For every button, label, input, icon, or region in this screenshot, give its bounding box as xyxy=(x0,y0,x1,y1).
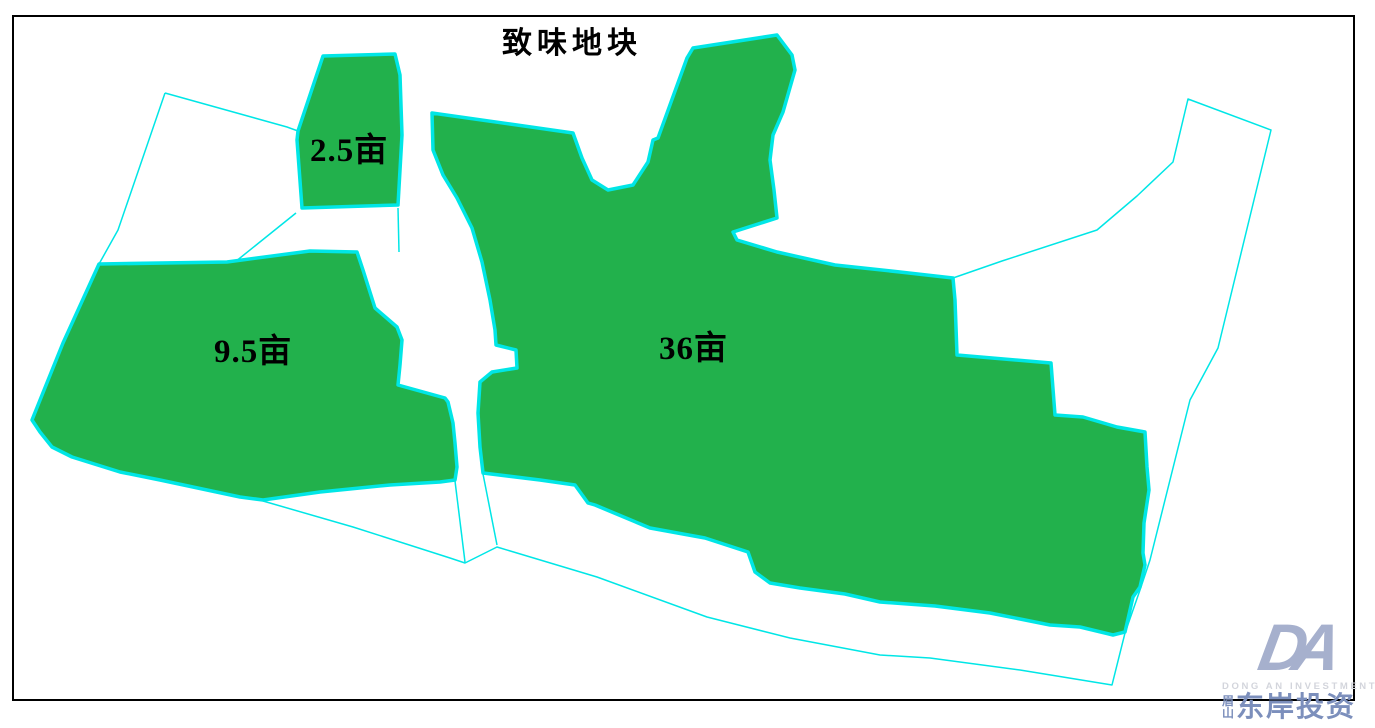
boundary-line xyxy=(99,93,165,264)
parcel-label-36: 36亩 xyxy=(659,331,728,367)
boundary-line xyxy=(398,208,399,252)
company-logo: DA DONG AN INVESTMENT 眉 山 东岸投资 xyxy=(1222,616,1375,721)
map-title: 致味地块 xyxy=(502,27,642,60)
parcel-group xyxy=(32,35,1149,635)
boundary-line xyxy=(165,93,298,131)
logo-seal: 眉 山 xyxy=(1222,695,1234,719)
logo-name: 东岸投资 xyxy=(1236,693,1356,721)
boundary-line xyxy=(483,474,497,545)
logo-seal-top: 眉 xyxy=(1222,695,1234,707)
boundary-line xyxy=(455,481,465,562)
parcel-label-2-5: 2.5亩 xyxy=(310,133,388,169)
parcel-label-9-5: 9.5亩 xyxy=(214,334,292,370)
parcel-36 xyxy=(432,35,1149,635)
map-canvas: 致味地块 2.5亩 9.5亩 36亩 DA DONG AN INVESTMENT… xyxy=(0,0,1375,728)
logo-name-row: 眉 山 东岸投资 xyxy=(1222,693,1375,721)
logo-monogram: DA xyxy=(1216,616,1375,679)
parcel-9-5 xyxy=(32,251,457,500)
logo-seal-bottom: 山 xyxy=(1222,707,1234,719)
parcel-2-5 xyxy=(297,54,402,208)
